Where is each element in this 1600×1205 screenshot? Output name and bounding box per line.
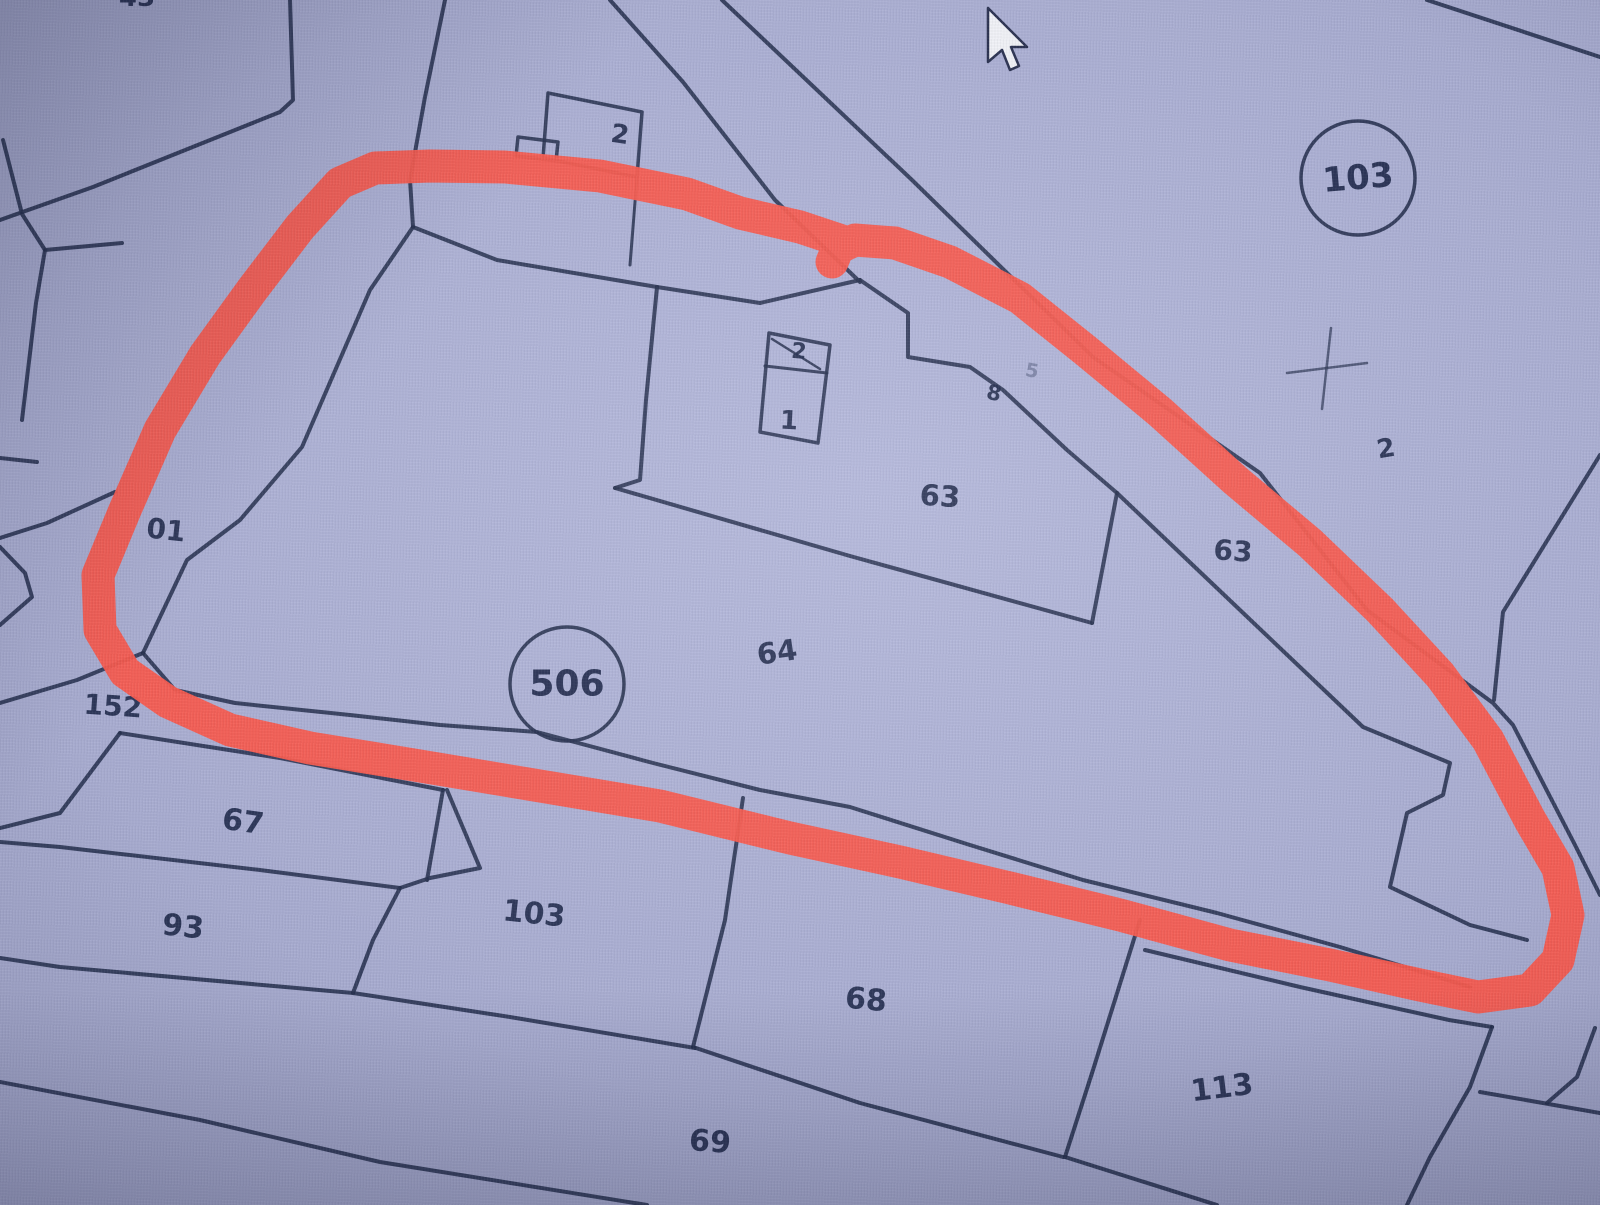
highlight-annotation-stroke <box>98 166 1568 997</box>
parcel-label-103-bottom: 103 <box>501 893 567 934</box>
parcel-label-01: 01 <box>145 512 187 549</box>
boundary-parcel64-left <box>143 227 413 653</box>
boundary-parcel69-top <box>0 958 695 1048</box>
boundary-parcel93-right <box>353 888 400 993</box>
boundary-bottom-boundary <box>0 1082 647 1205</box>
circled-parcel-506-text: 506 <box>529 664 604 705</box>
building-label-2-center: 2 <box>790 339 807 365</box>
boundary-bottomright-curve <box>1547 1028 1595 1103</box>
boundary-parcel63-top <box>657 280 860 303</box>
parcel-label-2-right: 2 <box>1374 433 1397 466</box>
mouse-cursor-group <box>988 8 1027 70</box>
boundary-road-upper-left-edge <box>410 0 445 227</box>
boundary-parcel67-left <box>0 733 120 828</box>
boundary-left-small-parcel-a <box>0 492 115 538</box>
small-label-8: 8 <box>984 380 1003 407</box>
red-highlight-annotation-group <box>98 166 1568 997</box>
boundary-topleft-strip-inner <box>3 140 45 420</box>
boundary-parcel64-top <box>413 227 657 287</box>
boundary-road-r4 <box>1494 455 1600 700</box>
boundary-parcel113-right <box>1407 1027 1492 1205</box>
screen-photo: 103506 432221636385646793103686911315201 <box>0 0 1600 1205</box>
boundary-road-r2 <box>722 0 1600 895</box>
parcel-label-68: 68 <box>844 981 889 1020</box>
mouse-cursor-icon <box>988 8 1027 70</box>
boundary-parcel68-bottom <box>693 1047 1063 1157</box>
boundary-parcel63-left <box>615 287 657 488</box>
circled-parcel-103-text: 103 <box>1321 155 1395 201</box>
boundary-left-edge-stub <box>0 458 37 462</box>
small-label-5-faint: 5 <box>1024 359 1041 383</box>
parcel-label-43-clipped: 43 <box>119 0 155 13</box>
boundary-parcel63-bottom <box>615 488 1092 623</box>
parcel-label-63-road: 63 <box>1212 533 1253 569</box>
parcel-label-67: 67 <box>220 802 266 842</box>
boundary-parcel113-bottom <box>1065 1157 1217 1205</box>
parcel-label-69: 69 <box>688 1123 732 1161</box>
parcel-label-93: 93 <box>160 907 205 946</box>
boundary-topleft-spur <box>45 243 122 250</box>
boundary-parcel63-right <box>1092 493 1117 623</box>
boundary-topleft-strip-outer <box>0 0 293 220</box>
building-label-2-top: 2 <box>609 119 631 151</box>
boundary-parcel113-left <box>1065 920 1140 1157</box>
cadastral-map-canvas[interactable]: 103506 432221636385646793103686911315201 <box>0 0 1600 1205</box>
parcel-label-63: 63 <box>919 478 962 515</box>
boundary-parcel67-right <box>427 790 443 880</box>
boundary-road-r3 <box>1427 0 1600 57</box>
boundary-bottomright-spur <box>1480 1092 1600 1113</box>
boundary-left-small-parcel-b <box>0 547 32 625</box>
parcel-label-64: 64 <box>755 632 800 671</box>
parcel-label-113: 113 <box>1189 1067 1255 1109</box>
boundary-parcel93-top <box>0 842 400 888</box>
building-label-1-center: 1 <box>779 406 799 437</box>
